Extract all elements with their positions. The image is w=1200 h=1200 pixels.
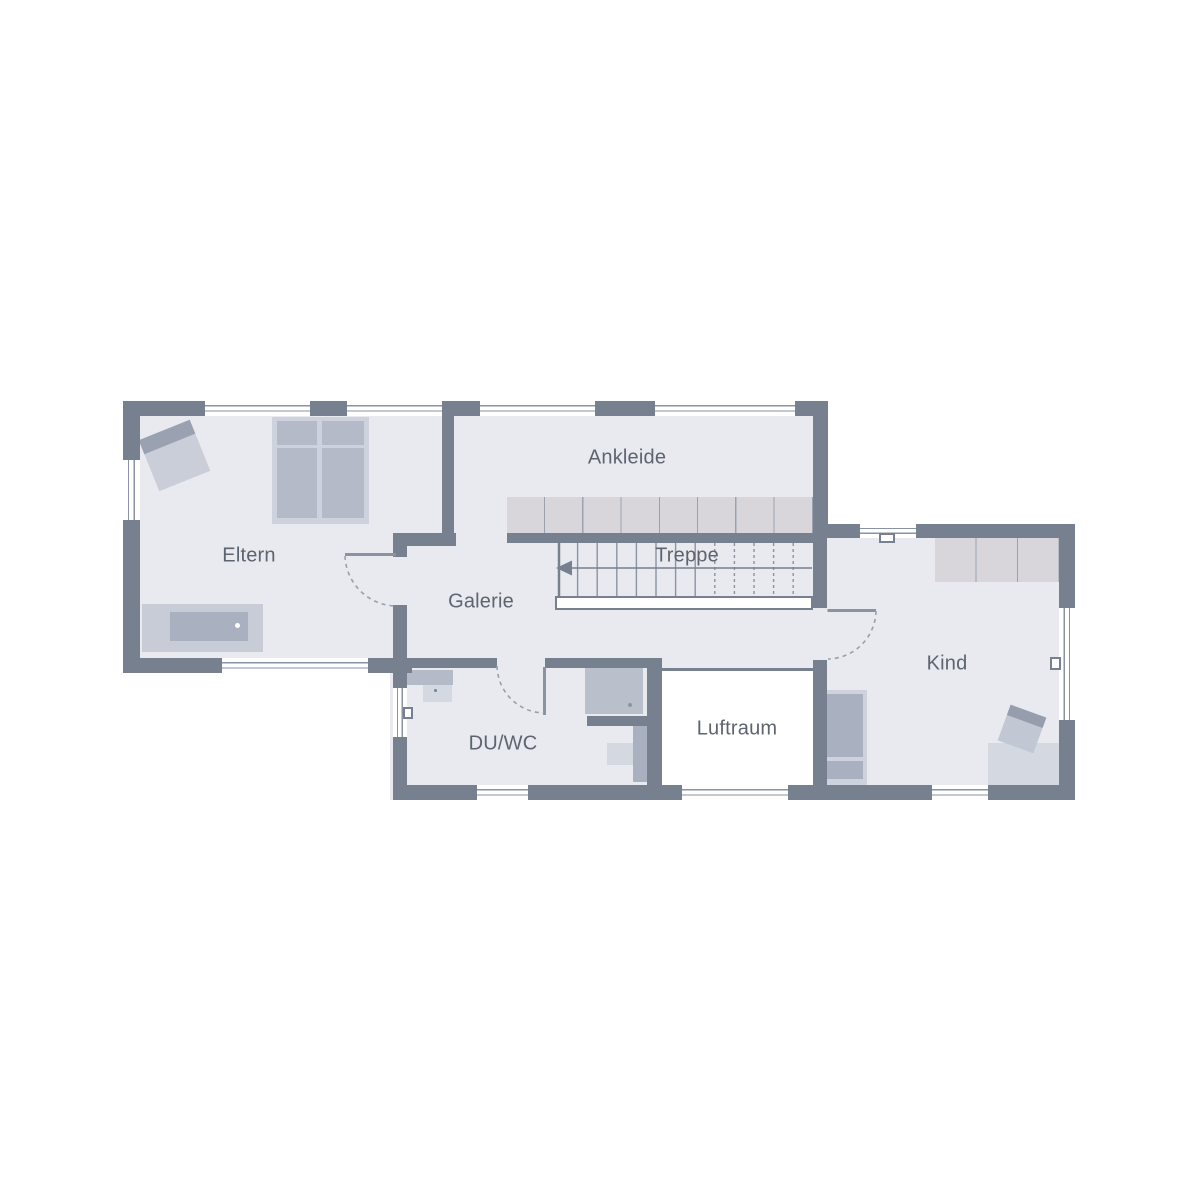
floor-plan: Eltern Ankleide Treppe Galerie DU/WC Luf… xyxy=(0,0,1200,1200)
door-swing-duwc xyxy=(497,666,544,713)
door-swings xyxy=(345,556,876,713)
room-label-duwc: DU/WC xyxy=(469,733,538,756)
plan-linework xyxy=(0,0,1200,1200)
room-label-galerie: Galerie xyxy=(448,591,514,614)
room-label-luftraum: Luftraum xyxy=(697,718,778,741)
door-swing-eltern xyxy=(345,556,395,606)
door-leaves xyxy=(345,555,876,716)
room-label-kind: Kind xyxy=(927,653,968,676)
door-swing-kind xyxy=(828,611,876,659)
room-label-ankleide: Ankleide xyxy=(588,447,666,470)
room-label-eltern: Eltern xyxy=(222,545,275,568)
stairs-landing-edge xyxy=(556,597,812,609)
room-label-treppe: Treppe xyxy=(655,545,719,568)
